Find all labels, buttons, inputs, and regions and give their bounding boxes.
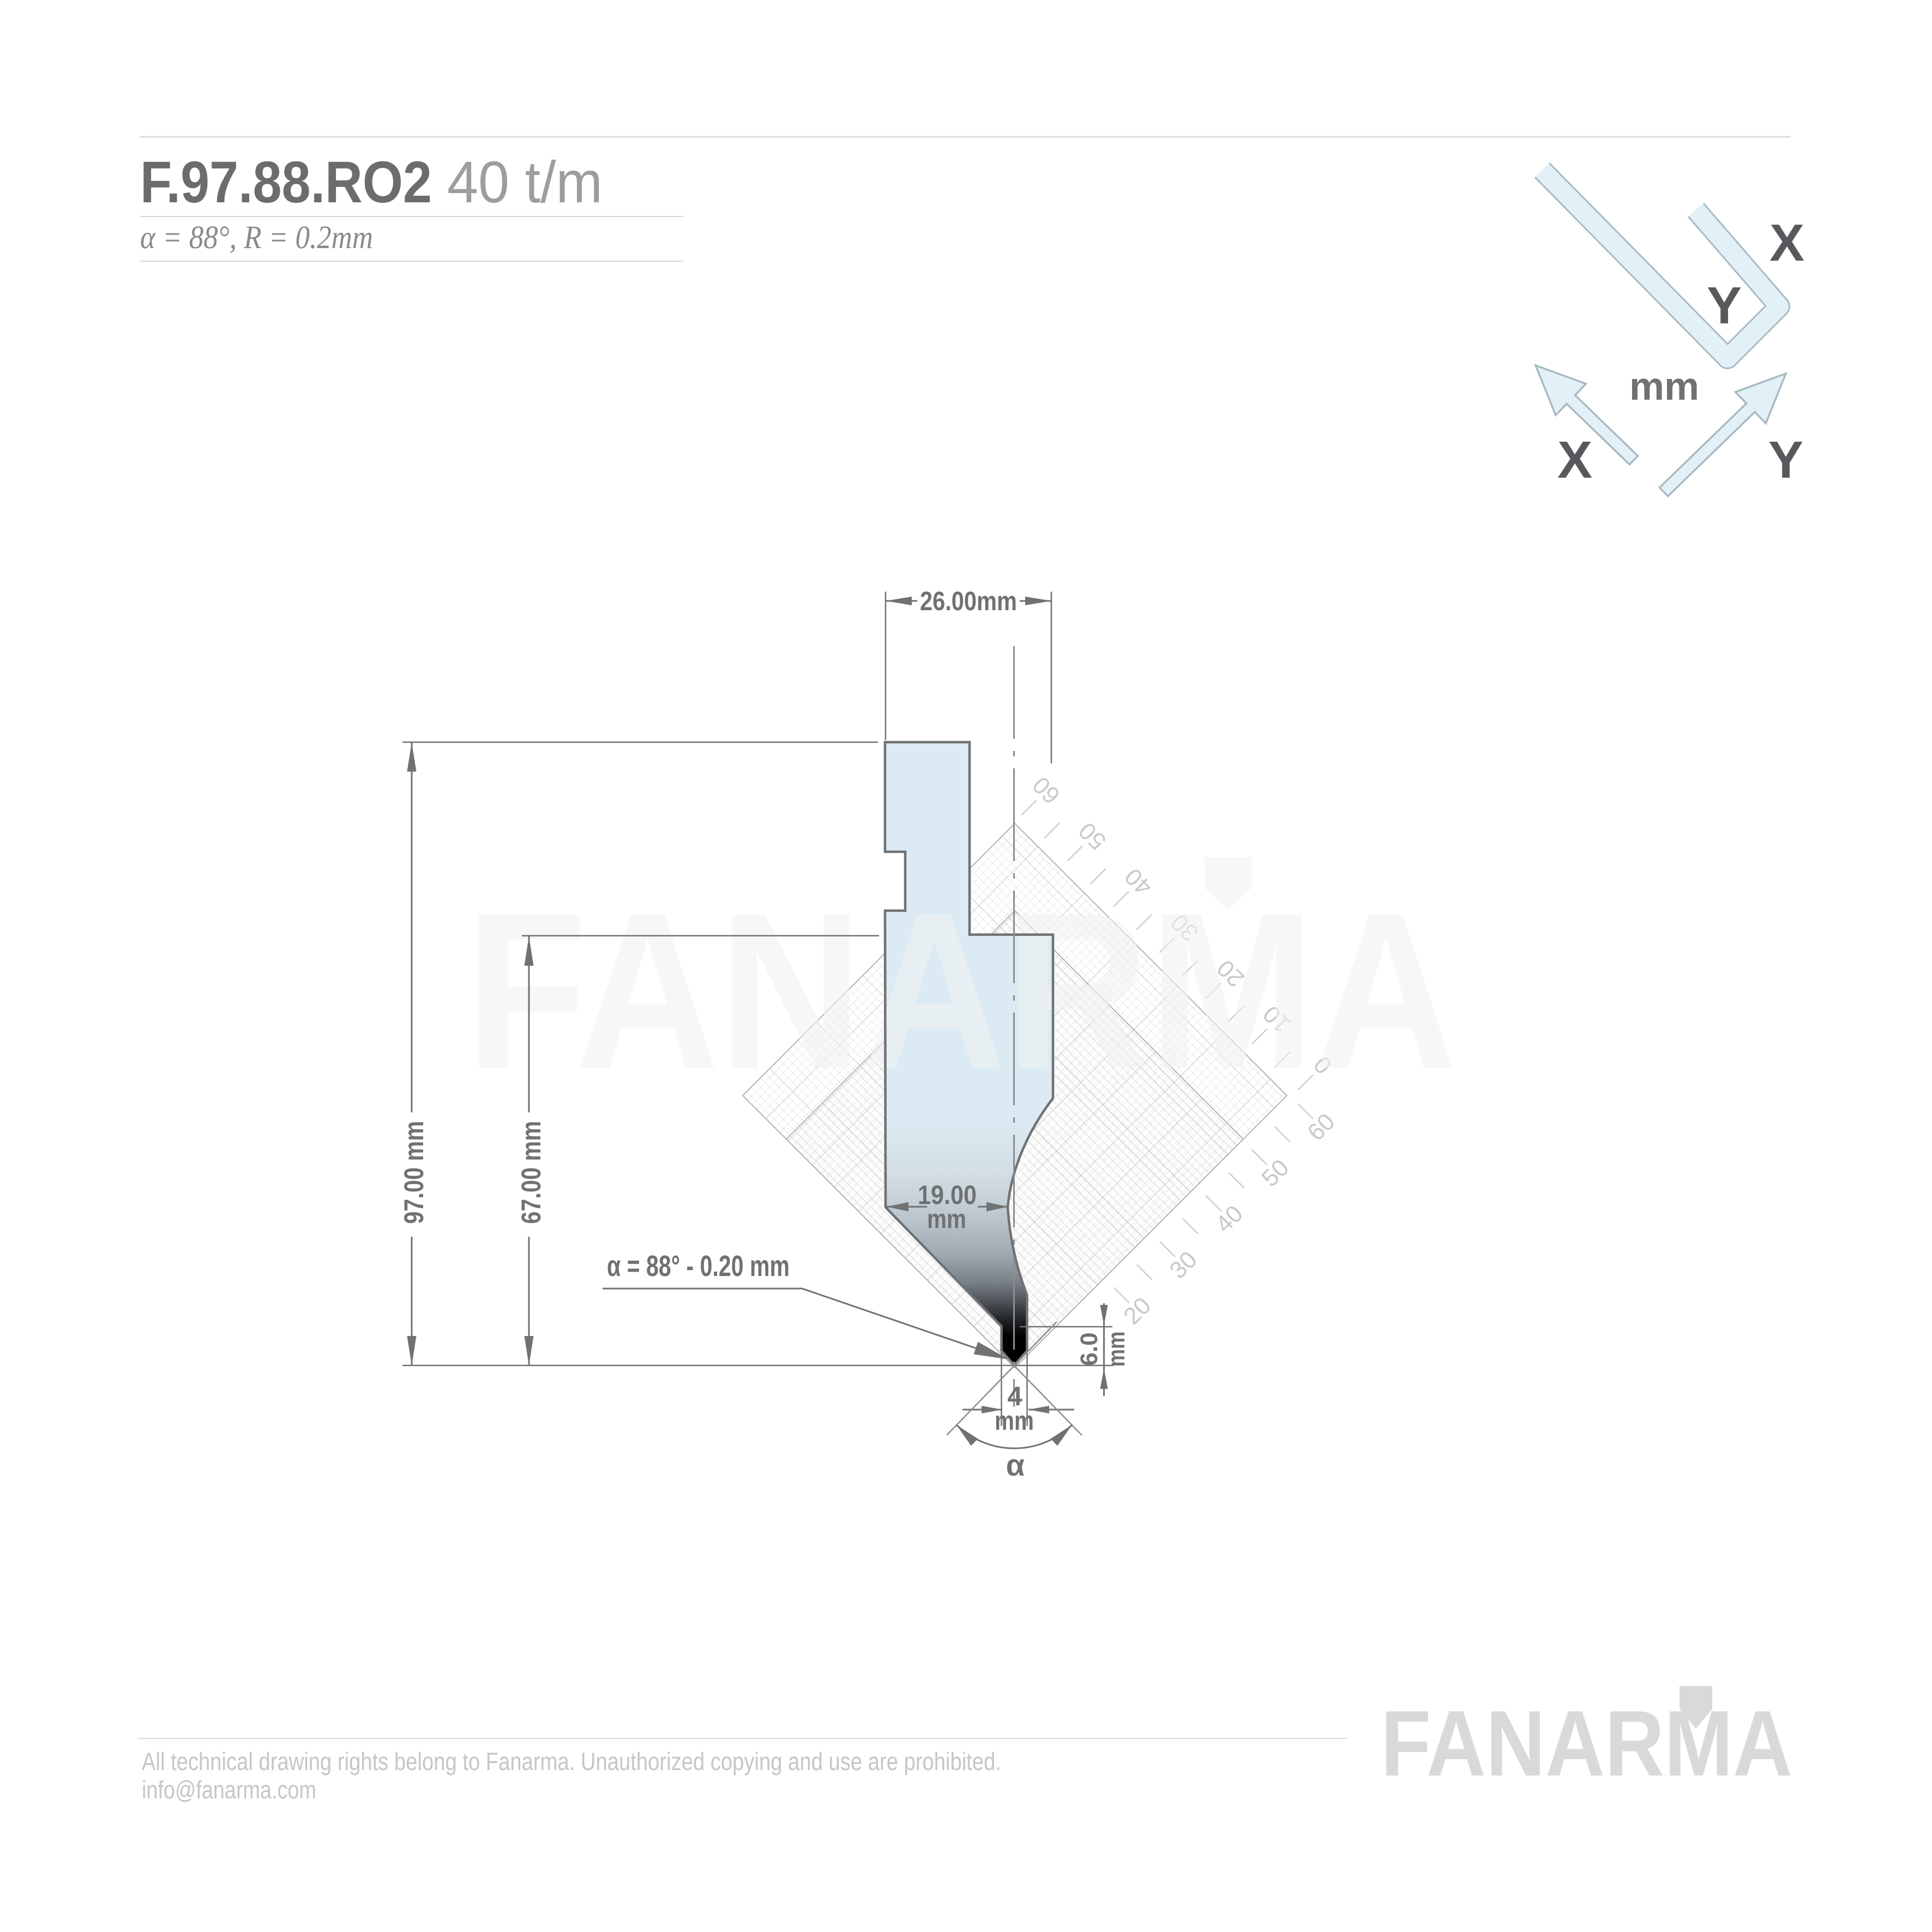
svg-text:X: X xyxy=(1557,431,1592,489)
svg-text:α = 88°, R = 0.2mm: α = 88°, R = 0.2mm xyxy=(140,219,373,255)
svg-text:FANARMA: FANARMA xyxy=(466,867,1458,1115)
svg-text:All technical drawing rights b: All technical drawing rights belong to F… xyxy=(142,1747,1001,1775)
svg-text:67.00 mm: 67.00 mm xyxy=(516,1121,546,1224)
svg-text:mm: mm xyxy=(995,1406,1034,1436)
svg-text:Y: Y xyxy=(1707,276,1742,335)
svg-text:mm: mm xyxy=(1103,1332,1130,1367)
svg-text:mm: mm xyxy=(1629,365,1699,408)
svg-text:F.97.88.RO2: F.97.88.RO2 xyxy=(140,149,432,215)
svg-text:6.0: 6.0 xyxy=(1076,1332,1103,1365)
svg-text:info@fanarma.com: info@fanarma.com xyxy=(142,1775,316,1804)
svg-text:40 t/m: 40 t/m xyxy=(447,149,603,215)
svg-text:Y: Y xyxy=(1768,431,1803,489)
svg-text:mm: mm xyxy=(927,1205,966,1234)
svg-text:α = 88° - 0.20 mm: α = 88° - 0.20 mm xyxy=(607,1250,790,1283)
svg-text:26.00mm: 26.00mm xyxy=(920,587,1017,616)
svg-text:FANARMA: FANARMA xyxy=(1381,1692,1792,1796)
svg-text:97.00 mm: 97.00 mm xyxy=(399,1121,429,1224)
svg-text:α: α xyxy=(1006,1448,1025,1482)
svg-text:X: X xyxy=(1770,214,1804,272)
